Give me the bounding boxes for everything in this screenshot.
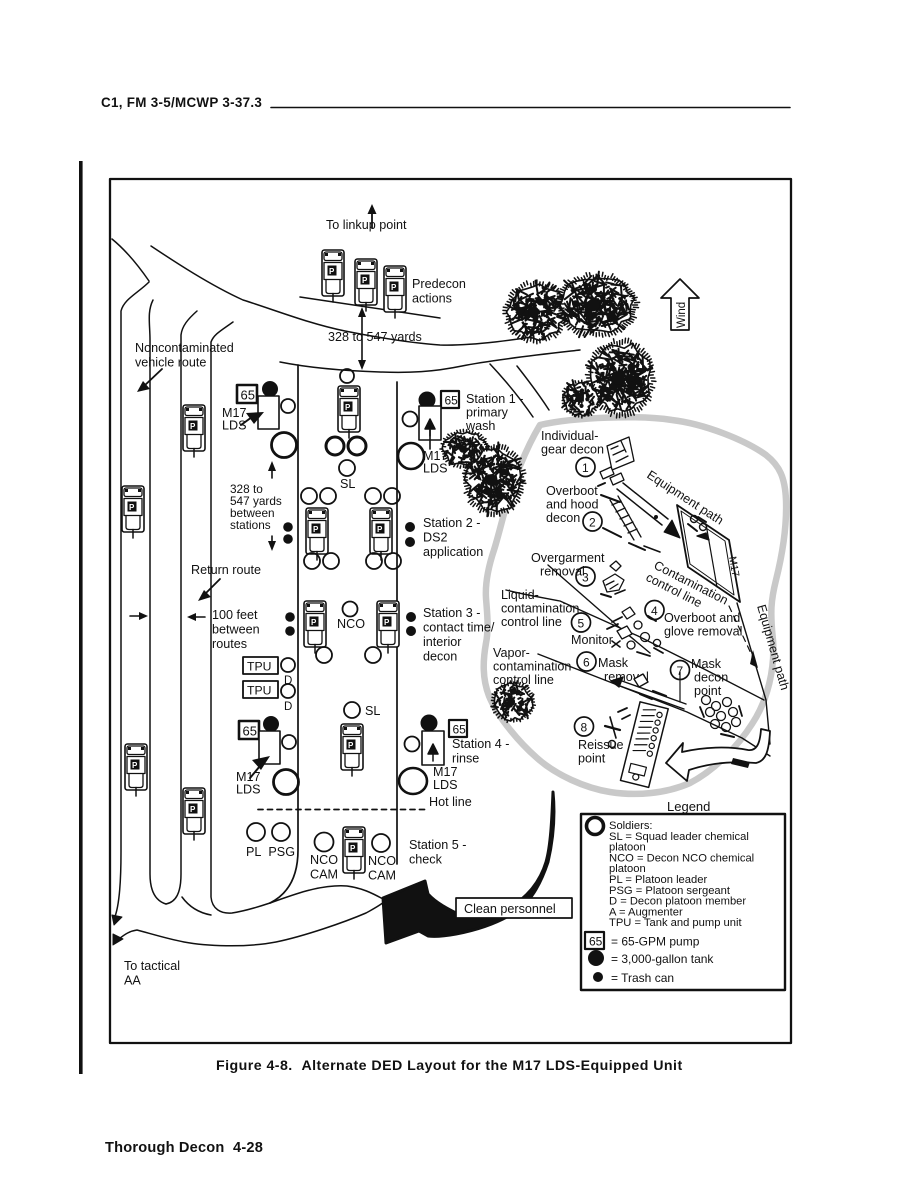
svg-text:= 65-GPM pump: = 65-GPM pump [611, 935, 700, 949]
svg-text:SL: SL [365, 704, 380, 718]
svg-text:Monitor: Monitor [571, 633, 613, 647]
svg-text:2: 2 [589, 516, 596, 530]
svg-text:Figure 4-8. Alternate DED Lay: Figure 4-8. Alternate DED Layout for the… [216, 1058, 683, 1074]
svg-text:DS2: DS2 [423, 531, 448, 545]
svg-text:interior: interior [423, 635, 462, 649]
svg-text:TPU: TPU [247, 684, 271, 698]
svg-text:AA: AA [124, 974, 141, 988]
svg-text:To tactical: To tactical [124, 959, 180, 973]
svg-text:Vapor-: Vapor- [493, 646, 530, 660]
svg-text:glove removal: glove removal [664, 625, 742, 639]
svg-text:SL: SL [340, 477, 355, 491]
svg-text:primary: primary [466, 406, 509, 420]
svg-text:328 to 547 yards: 328 to 547 yards [328, 330, 422, 344]
svg-text:NCO: NCO [337, 617, 365, 631]
svg-text:LDS: LDS [236, 783, 261, 797]
svg-text:65: 65 [453, 723, 467, 737]
svg-text:contamination: contamination [501, 602, 579, 616]
svg-text:PL PSG: PL PSG [246, 845, 295, 859]
svg-text:removal: removal [540, 565, 585, 579]
svg-text:gear decon: gear decon [541, 443, 604, 457]
svg-text:TPU: TPU [247, 660, 271, 674]
svg-text:Station 5 -: Station 5 - [409, 838, 466, 852]
svg-text:LDS: LDS [433, 778, 458, 792]
svg-text:Predecon: Predecon [412, 277, 466, 291]
svg-text:decon: decon [694, 671, 728, 685]
svg-text:LDS: LDS [423, 462, 448, 476]
svg-text:decon: decon [423, 650, 457, 664]
svg-text:decon: decon [546, 511, 580, 525]
svg-text:D: D [284, 701, 292, 713]
svg-text:65: 65 [589, 935, 603, 949]
svg-text:control line: control line [501, 615, 562, 629]
svg-text:point: point [578, 752, 606, 766]
svg-text:Station 1 -: Station 1 - [466, 392, 523, 406]
svg-text:Station 3 -: Station 3 - [423, 606, 480, 620]
svg-text:65: 65 [445, 394, 459, 408]
svg-text:8: 8 [581, 721, 588, 735]
svg-text:between: between [212, 623, 260, 637]
svg-text:CAM: CAM [310, 868, 338, 882]
svg-text:vehicle route: vehicle route [135, 356, 206, 370]
svg-text:Clean personnel: Clean personnel [464, 902, 556, 916]
svg-text:5: 5 [578, 617, 585, 631]
svg-text:Overboot: Overboot [546, 484, 598, 498]
svg-text:To linkup point: To linkup point [326, 218, 407, 232]
svg-text:Noncontaminated: Noncontaminated [135, 341, 234, 355]
svg-text:LDS: LDS [222, 419, 247, 433]
svg-text:Mask: Mask [598, 656, 629, 670]
svg-text:Individual-: Individual- [541, 429, 598, 443]
svg-text:= 3,000-gallon tank: = 3,000-gallon tank [611, 952, 714, 966]
svg-text:check: check [409, 853, 443, 867]
svg-text:TPU = Tank and pump unit: TPU = Tank and pump unit [609, 917, 742, 929]
svg-text:contact time/: contact time/ [423, 621, 495, 635]
svg-text:CAM: CAM [368, 869, 396, 883]
svg-text:Wind: Wind [676, 302, 688, 328]
svg-text:65: 65 [241, 388, 255, 403]
svg-text:Overboot and: Overboot and [664, 611, 740, 625]
svg-text:Mask: Mask [691, 657, 722, 671]
svg-text:Station 2 -: Station 2 - [423, 516, 480, 530]
svg-text:Hot line: Hot line [429, 795, 472, 809]
svg-text:M17: M17 [433, 765, 458, 779]
svg-text:Thorough Decon 4-28: Thorough Decon 4-28 [105, 1140, 263, 1156]
svg-text:6: 6 [583, 656, 590, 670]
svg-text:contamination: contamination [493, 660, 571, 674]
svg-text:NCO: NCO [368, 854, 396, 868]
svg-text:routes: routes [212, 637, 247, 651]
svg-text:Liquid-: Liquid- [501, 588, 539, 602]
svg-text:Station 4 -: Station 4 - [452, 737, 509, 751]
svg-text:Return route: Return route [191, 563, 261, 577]
svg-text:65: 65 [243, 724, 257, 739]
svg-text:NCO: NCO [310, 853, 338, 867]
svg-text:1: 1 [582, 461, 589, 475]
svg-text:and hood: and hood [546, 498, 599, 512]
svg-text:Reissue: Reissue [578, 738, 624, 752]
svg-text:wash: wash [465, 419, 495, 433]
svg-text:actions: actions [412, 292, 452, 306]
svg-text:100 feet: 100 feet [212, 608, 258, 622]
svg-text:rinse: rinse [452, 752, 479, 766]
svg-text:C1, FM 3-5/MCWP 3-37.3: C1, FM 3-5/MCWP 3-37.3 [101, 95, 262, 110]
svg-text:Overgarment: Overgarment [531, 551, 605, 565]
svg-text:stations: stations [230, 518, 271, 532]
svg-text:= Trash can: = Trash can [611, 971, 674, 985]
svg-text:application: application [423, 545, 483, 559]
svg-text:Legend: Legend [667, 799, 710, 814]
svg-text:4: 4 [651, 604, 658, 618]
